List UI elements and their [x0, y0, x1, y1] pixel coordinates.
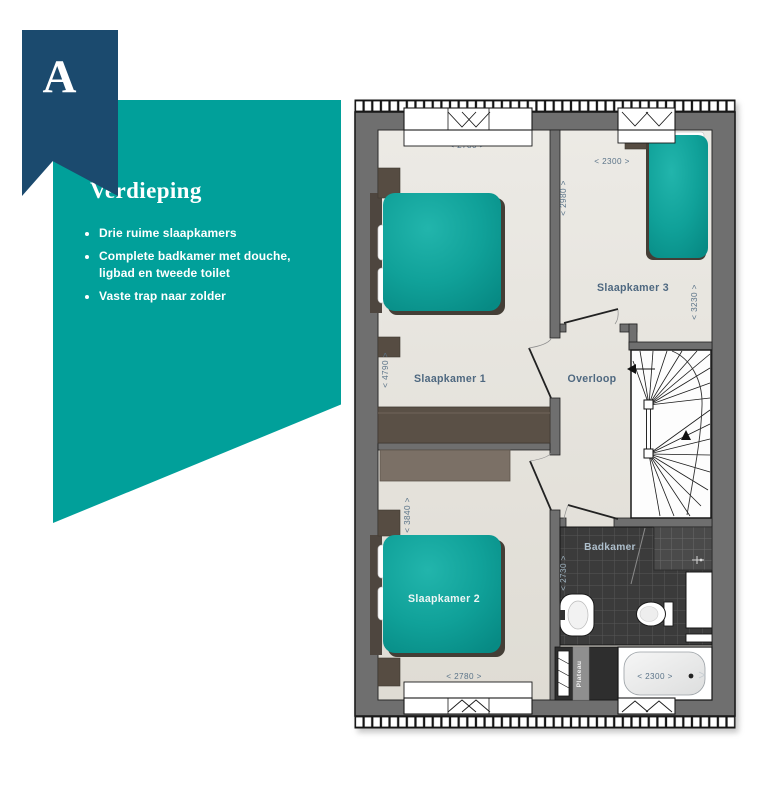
room-label-s3: Slaapkamer 3 — [597, 282, 669, 294]
feature-list: Drie ruime slaapkamers Complete badkamer… — [85, 225, 299, 311]
dim-width-s2: < 2780 > — [446, 672, 482, 681]
shelf — [686, 634, 712, 642]
dim-depth-s2: < 3840 > — [403, 497, 412, 533]
dim-side-s3: < 3230 > — [690, 284, 699, 320]
window-icon — [618, 698, 675, 714]
room-overloop: Overloop — [568, 373, 617, 385]
window-icon — [404, 682, 532, 714]
plateau-label: Plateau — [576, 661, 583, 688]
wardrobe — [380, 450, 510, 481]
dim-bath: < 2300 > — [637, 672, 673, 681]
feature-item: Drie ruime slaapkamers — [99, 225, 299, 242]
window-icon — [618, 108, 675, 143]
sink-icon — [560, 594, 594, 636]
nightstand — [378, 510, 400, 536]
room-label-s1: Slaapkamer 1 — [414, 373, 486, 385]
cabinet — [686, 572, 712, 628]
dim-width-s3: < 2300 > — [594, 157, 630, 166]
bath-drain-icon — [689, 674, 694, 679]
room-label-overloop: Overloop — [568, 373, 617, 385]
stairs-icon — [627, 350, 711, 518]
bed-icon — [649, 135, 708, 258]
dim-depth-badkamer: < 2730 > — [559, 555, 568, 591]
window-icon — [404, 108, 532, 146]
dim-depth-s3: < 2980 > — [559, 180, 568, 216]
shower-floor — [654, 527, 712, 570]
nightstand — [378, 658, 400, 686]
room-label-s2: Slaapkamer 2 — [408, 593, 480, 605]
bed-icon — [383, 193, 501, 311]
dim-depth-s1: < 4790 > — [381, 352, 390, 388]
feature-item: Vaste trap naar zolder — [99, 288, 299, 305]
feature-item: Complete badkamer met douche, ligbad en … — [99, 248, 299, 282]
variant-letter: A — [22, 50, 97, 104]
gutter-strip-bottom — [355, 716, 735, 728]
plateau-steps — [558, 651, 569, 696]
floorplan: < 2780 > < 4790 > Slaapkamer 1 < 3840 > … — [352, 98, 738, 730]
room-label-badkamer: Badkamer — [584, 542, 636, 553]
toilet-icon — [637, 602, 674, 626]
room-badkamer: Plateau Badkamer < 2730 > < 2300 > — [555, 527, 712, 700]
